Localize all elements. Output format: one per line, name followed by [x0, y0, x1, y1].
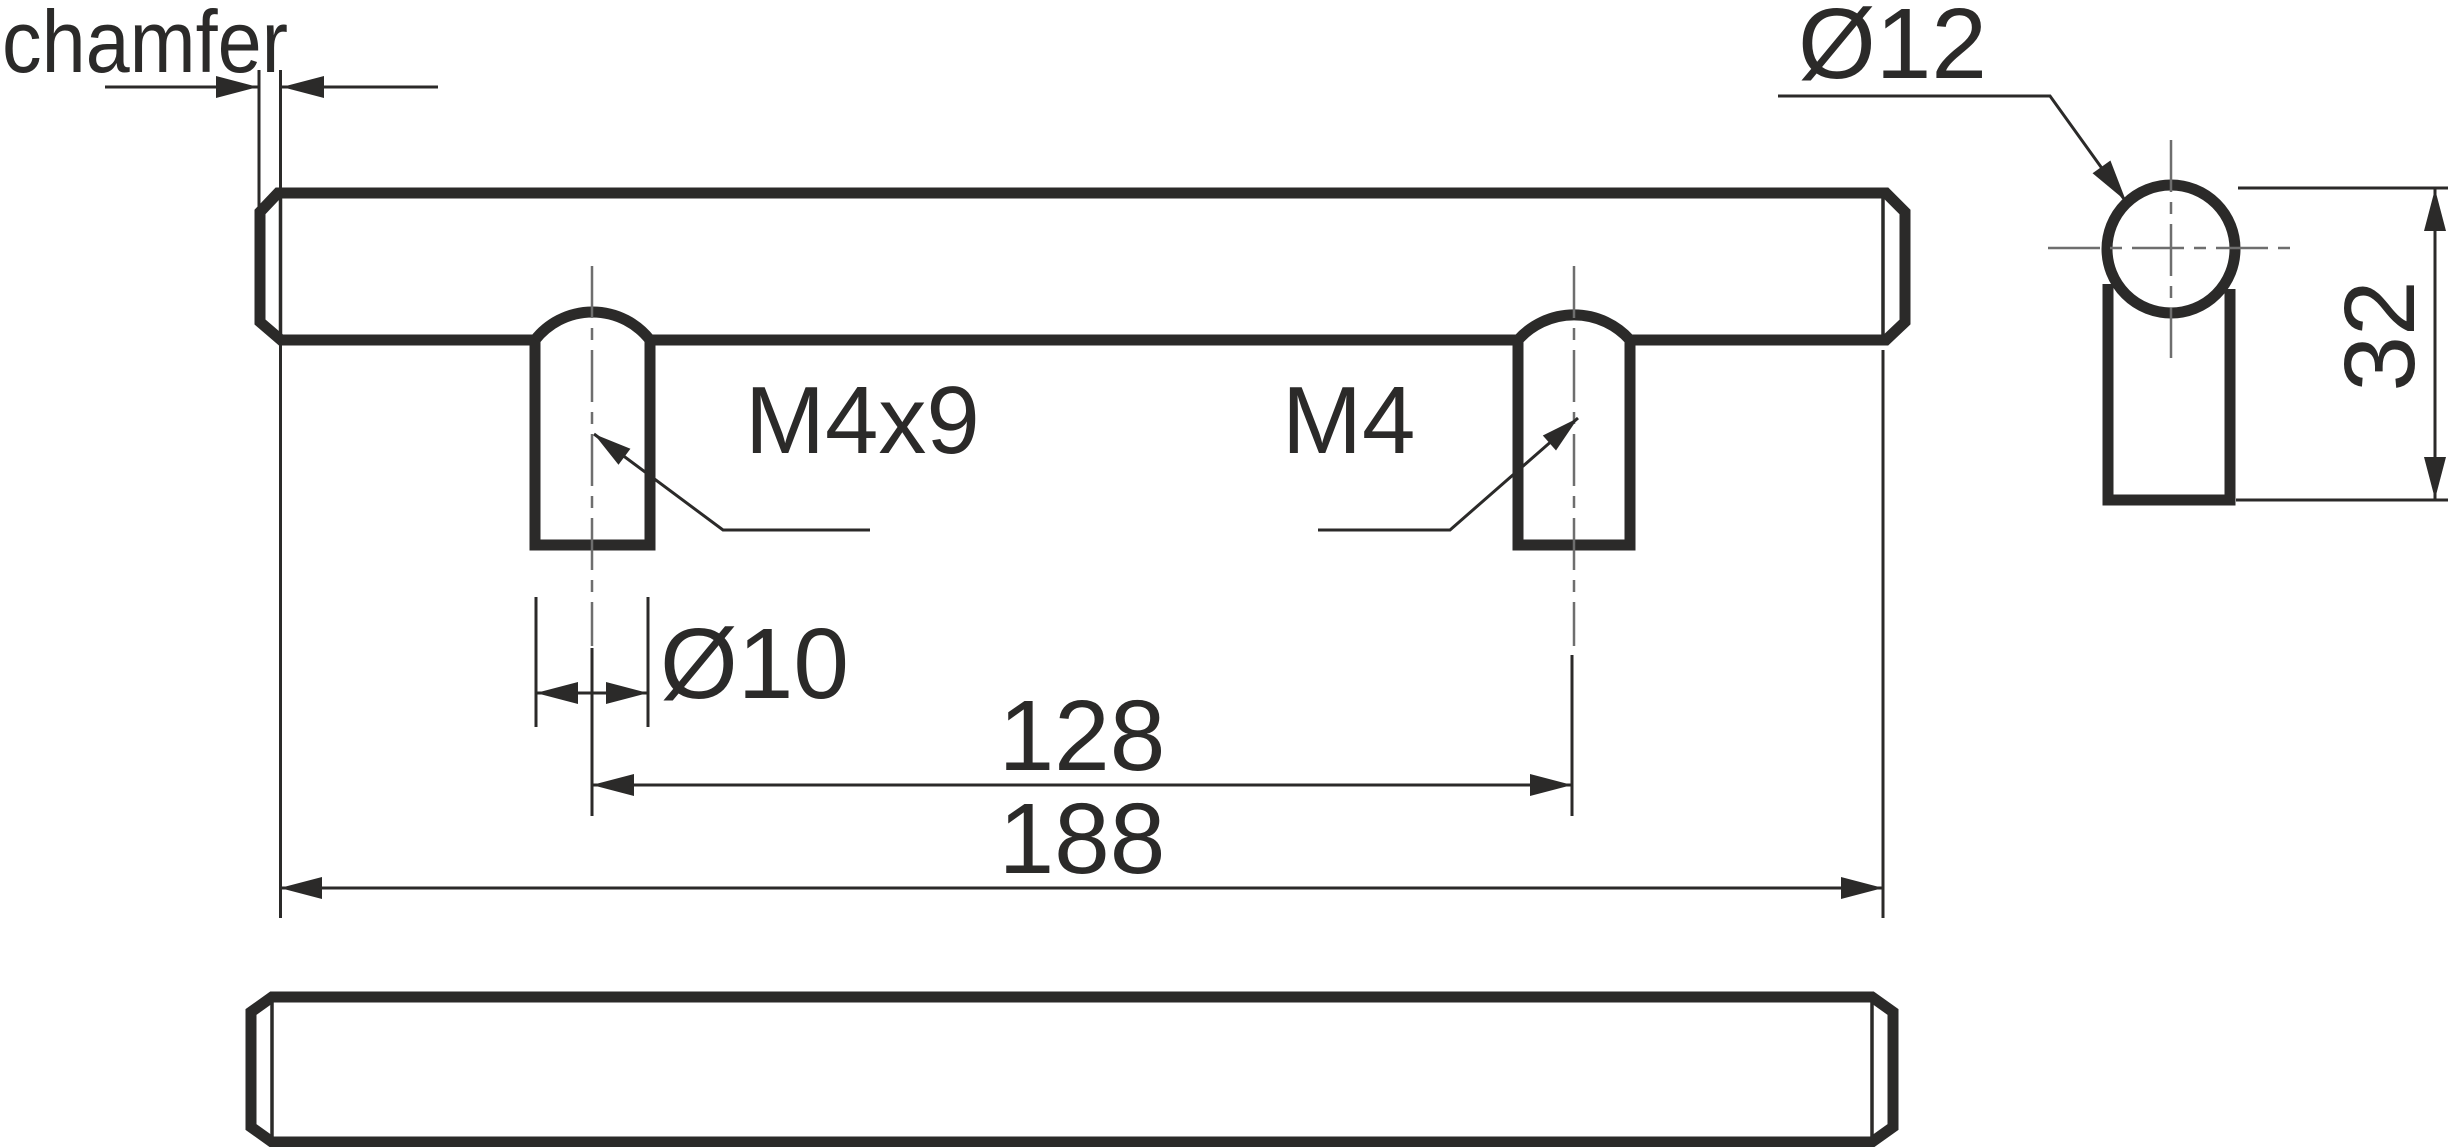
thread-callout-post1-label: M4x9 [745, 367, 980, 474]
handle-drawing-svg: chamfer Ø12 M4x9 M4 Ø10 128 188 32 [0, 0, 2449, 1147]
front-view [260, 193, 1905, 646]
dia10-arrow-left [536, 682, 578, 704]
overall-height-label: 32 [2324, 280, 2436, 391]
dim188-arrow-right [1841, 877, 1883, 899]
bar-diameter-label: Ø12 [1798, 0, 1987, 100]
annotations: chamfer Ø12 M4x9 M4 Ø10 128 188 32 [2, 0, 2436, 895]
post-diameter-label: Ø10 [660, 608, 849, 720]
dim32-arrow-top [2424, 189, 2446, 231]
leader-line-dia12 [1778, 96, 2124, 199]
chamfer-note-label: chamfer [2, 0, 288, 91]
dim188-arrow-left [280, 877, 322, 899]
bottom-view [251, 997, 1893, 1142]
front-view-bar-and-posts-outline [260, 193, 1905, 545]
dim128-arrow-right [1530, 774, 1572, 796]
technical-drawing-canvas: chamfer Ø12 M4x9 M4 Ø10 128 188 32 [0, 0, 2449, 1147]
bottom-view-bar-outline [251, 997, 1893, 1142]
dim128-arrow-left [592, 774, 634, 796]
dia10-arrow-right [606, 682, 648, 704]
side-view [2048, 140, 2295, 500]
hole-spacing-label: 128 [999, 680, 1166, 792]
chamfer-arrow-right [282, 76, 324, 98]
dim32-arrow-bottom [2424, 457, 2446, 499]
thread-callout-post2-label: M4 [1282, 367, 1415, 474]
overall-length-label: 188 [999, 783, 1166, 895]
